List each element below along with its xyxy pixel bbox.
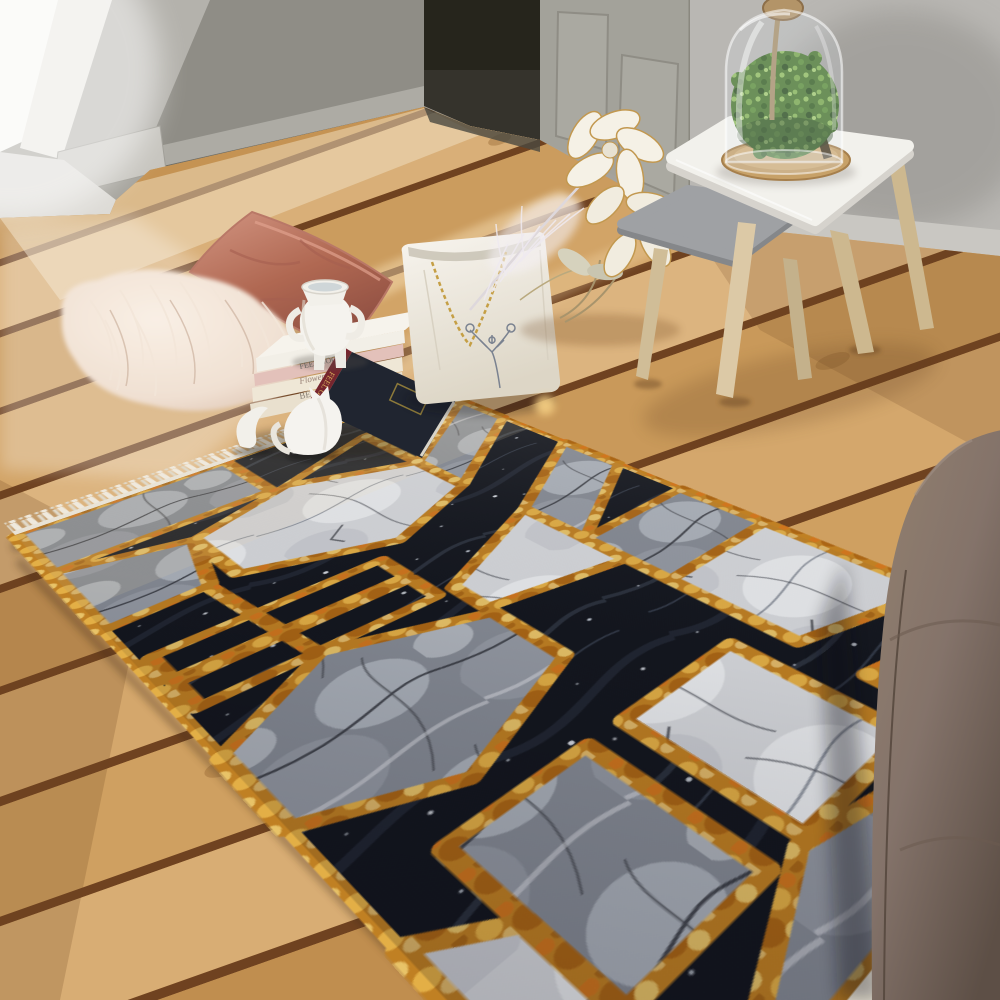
armchair: [820, 430, 1000, 1000]
cloche: [716, 0, 856, 186]
room-objects: FEEL GOOD Flowers BELLA FEEL GOOD: [0, 0, 1000, 1000]
armchair-shadow: [820, 560, 880, 1000]
room-photo: FEEL GOOD Flowers BELLA FEEL GOOD: [0, 0, 1000, 1000]
gold-glint: [535, 395, 555, 415]
glass-dome: [726, 10, 842, 162]
stool-shadow: [636, 324, 944, 457]
